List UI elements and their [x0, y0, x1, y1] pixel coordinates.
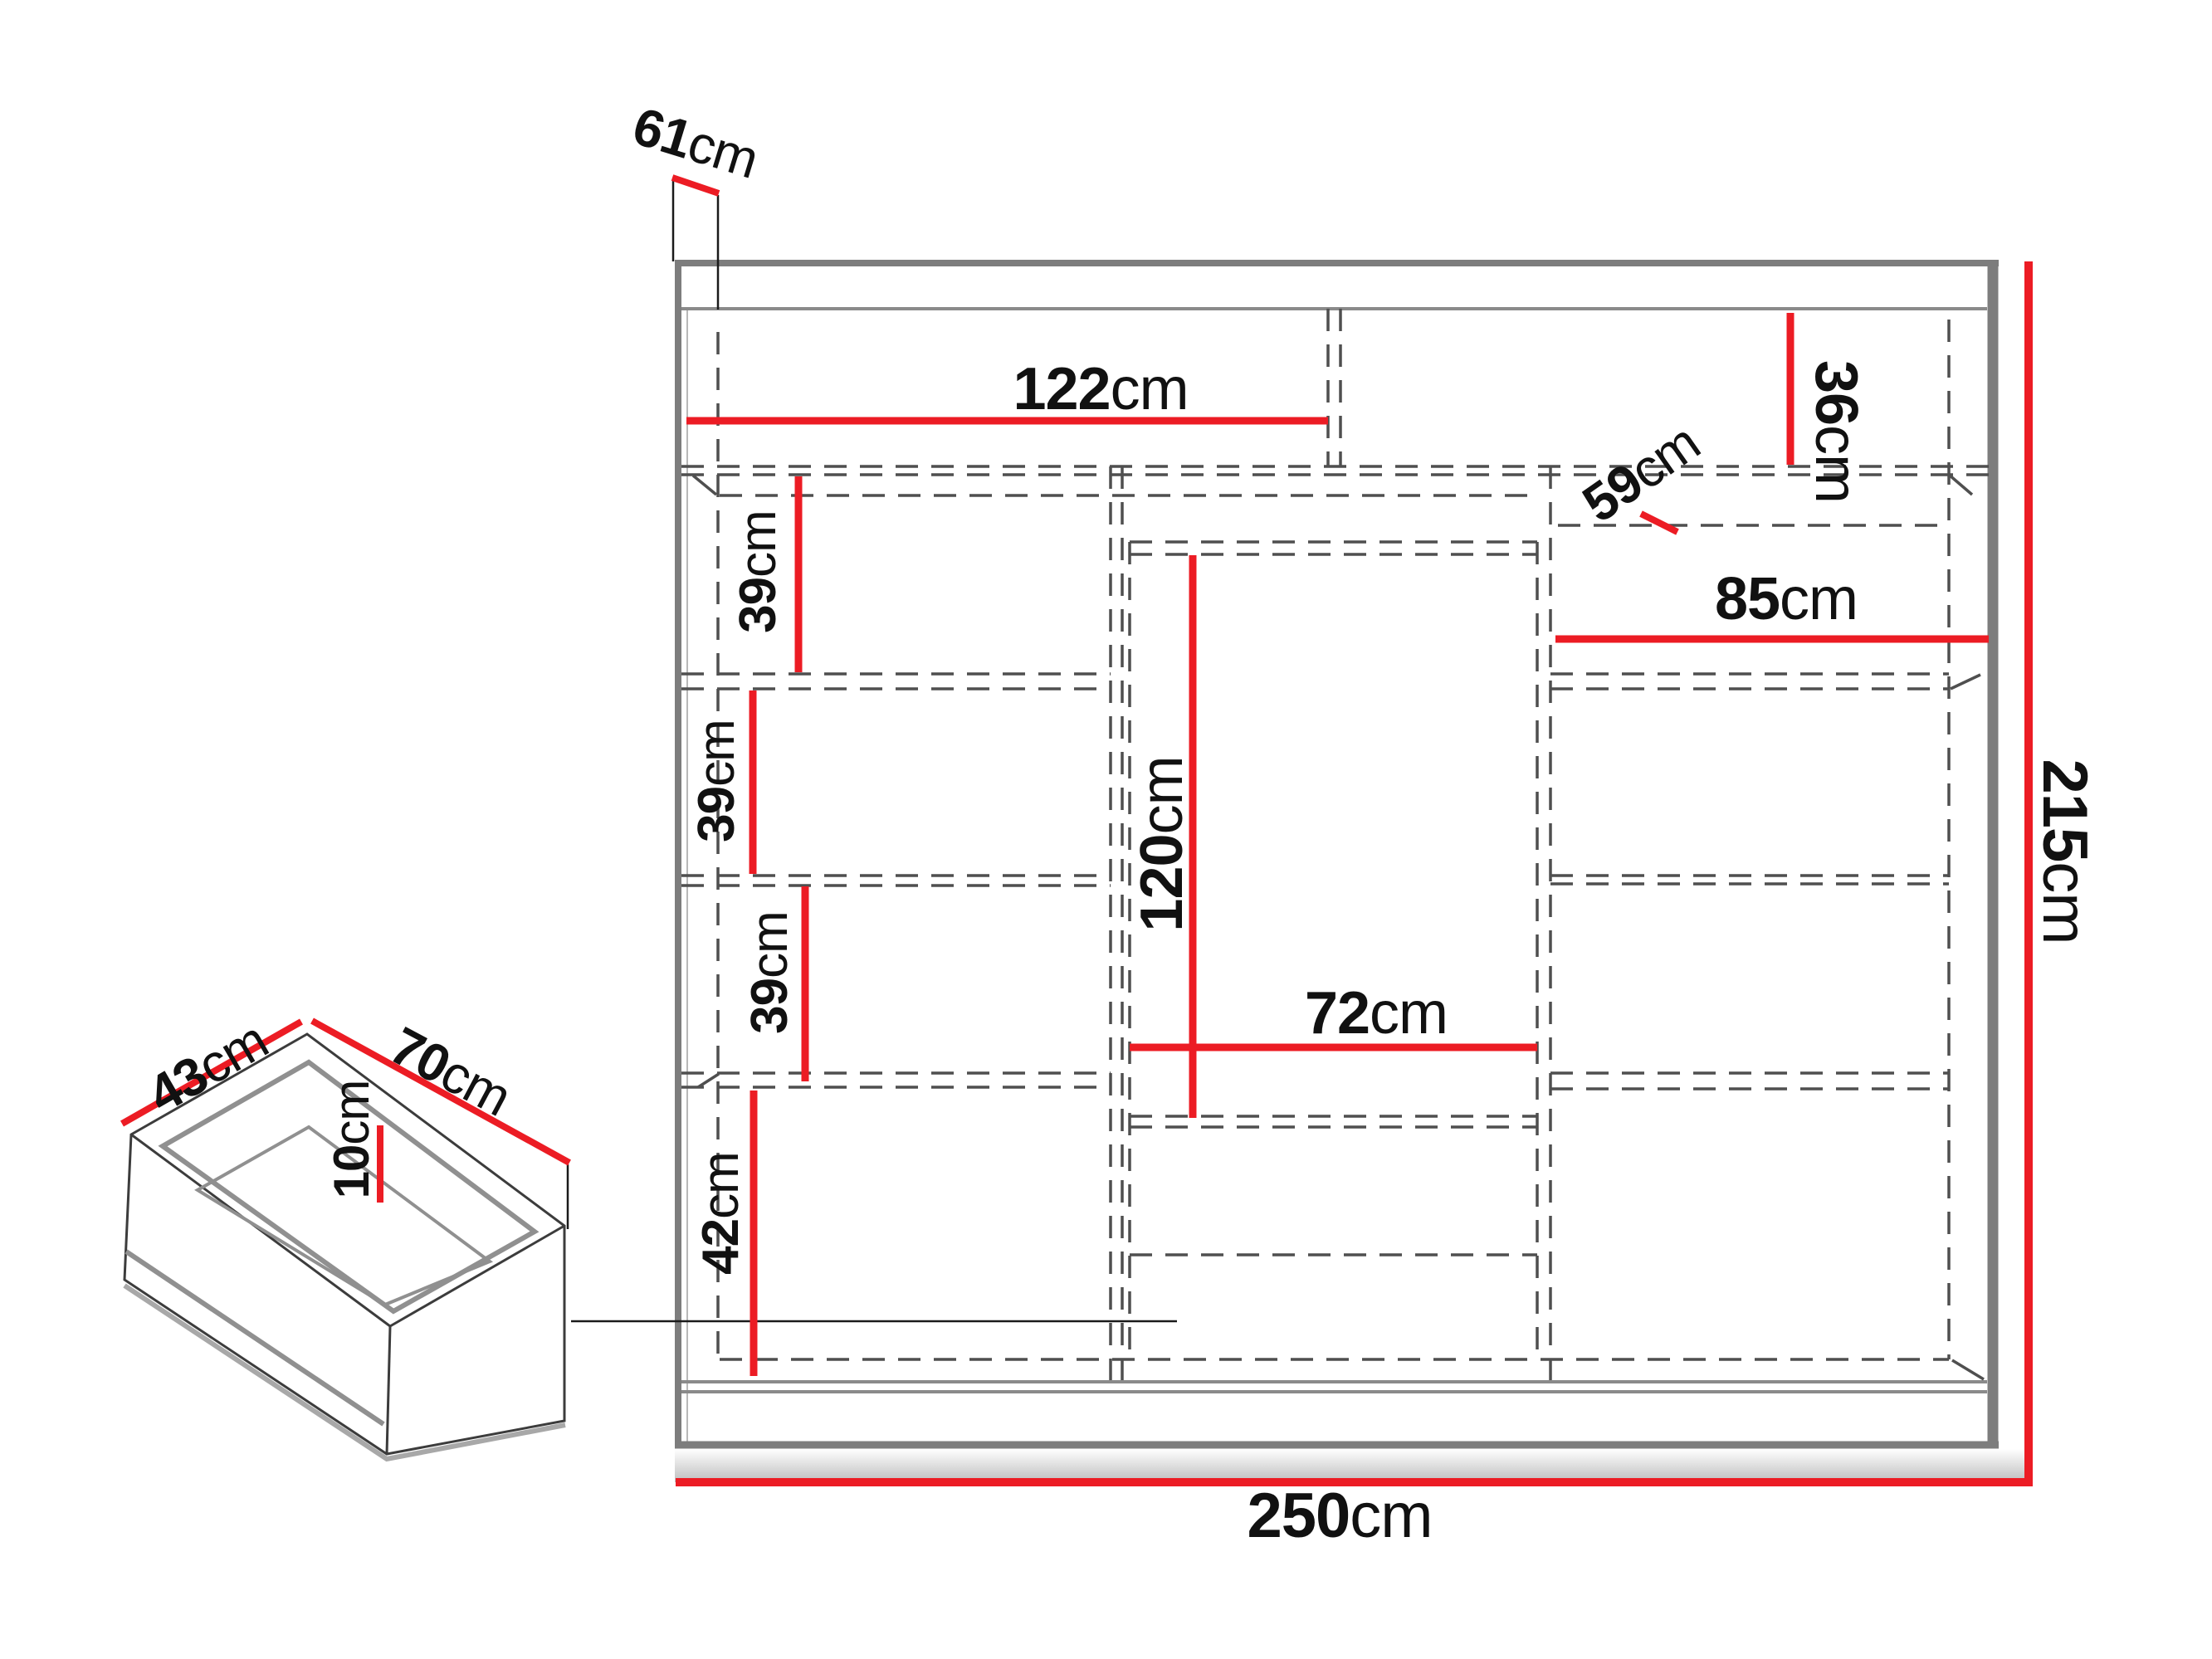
dim-label-39-mid: 39cm	[691, 720, 743, 842]
dim-label-250: 250cm	[1247, 1485, 1432, 1548]
dim-line-61	[672, 178, 719, 193]
dim-label-120: 120cm	[1132, 756, 1192, 931]
wardrobe-shelf-dashed-grid	[681, 309, 1989, 1380]
witness-lines	[568, 179, 1177, 1321]
dim-label-122: 122cm	[1013, 359, 1188, 419]
dim-label-39-bottom: 39cm	[745, 911, 796, 1034]
dim-label-39-top: 39cm	[733, 510, 784, 633]
wardrobe-line-drawing	[0, 0, 2212, 1659]
wardrobe-frame	[675, 260, 1999, 1448]
dim-label-10: 10cm	[327, 1081, 377, 1199]
dim-label-72: 72cm	[1305, 983, 1448, 1043]
dim-label-36: 36cm	[1806, 360, 1866, 503]
diagram-canvas: 61cm 122cm 36cm 59cm 85cm 39cm 39cm 39cm…	[0, 0, 2212, 1659]
dim-label-42: 42cm	[696, 1152, 747, 1275]
dim-label-215: 215cm	[2033, 759, 2096, 944]
dim-label-85: 85cm	[1715, 569, 1858, 629]
dim-line-59	[1641, 514, 1677, 532]
